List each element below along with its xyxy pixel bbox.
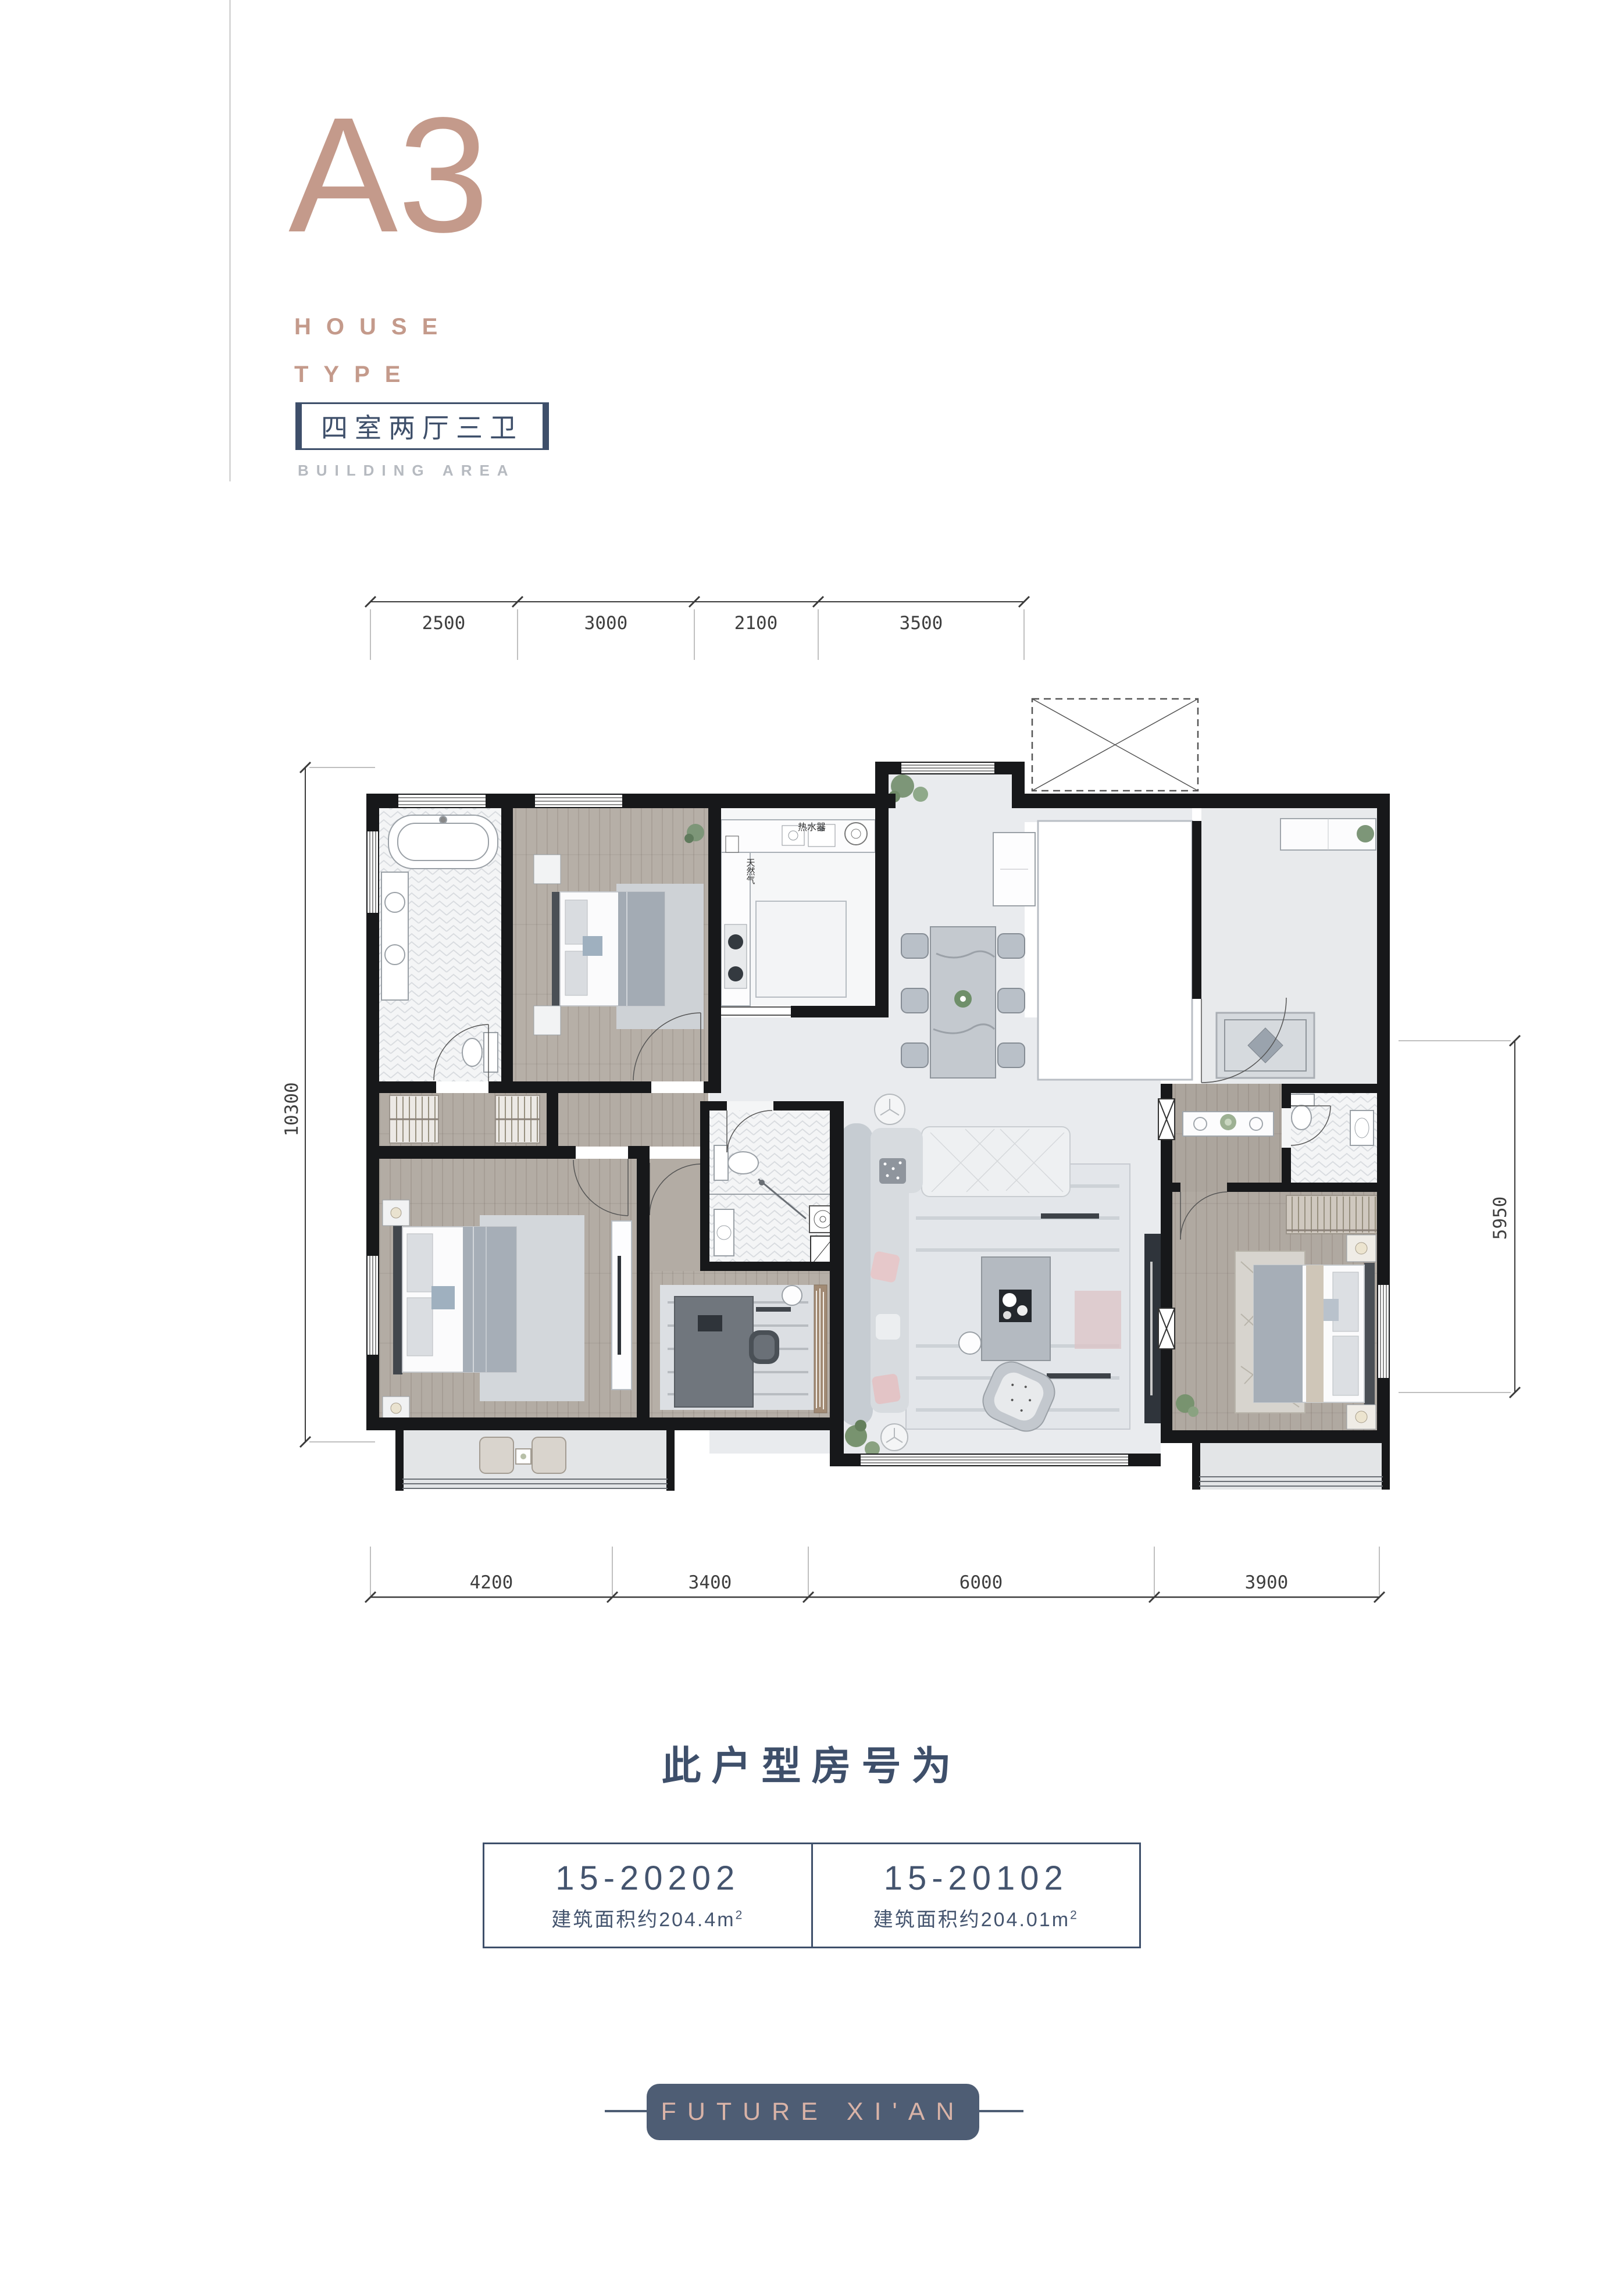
dimension-top: 2500 3000 2100 3500 bbox=[365, 597, 1029, 660]
unit1-room-number: 15-20202 bbox=[555, 1859, 740, 1898]
nightstand bbox=[534, 1006, 561, 1035]
tv-icon bbox=[1150, 1262, 1153, 1395]
kitchen-pass bbox=[721, 1007, 791, 1015]
unit-cell-2: 15-20102 建筑面积约204.01m2 bbox=[811, 1844, 1140, 1947]
water-heater-label: 热水器 bbox=[798, 822, 826, 833]
layout-badge: 四室两厅三卫 bbox=[295, 402, 549, 450]
water-heater bbox=[845, 823, 867, 845]
dimension-bottom: 4200 3400 6000 3900 bbox=[365, 1547, 1385, 1602]
plant-icon bbox=[1357, 825, 1374, 842]
dim-bottom-4: 3900 bbox=[1245, 1572, 1289, 1593]
unit1-area: 建筑面积约204.4m2 bbox=[551, 1904, 744, 1932]
brand-logo: FUTURE XI'AN bbox=[647, 2084, 979, 2140]
unit-cell-1: 15-20202 建筑面积约204.4m2 bbox=[484, 1844, 811, 1947]
unit1-area-sup: 2 bbox=[736, 1909, 744, 1922]
dim-bottom-3: 6000 bbox=[959, 1572, 1003, 1593]
dimension-right: 5950 bbox=[1399, 1035, 1520, 1398]
sink bbox=[1350, 1110, 1374, 1145]
tv-console bbox=[612, 1221, 632, 1390]
unit1-area-text: 建筑面积约204.4m bbox=[551, 1909, 735, 1931]
brochure-page: A3 HOUSE TYPE 四室两厅三卫 BUILDING AREA bbox=[0, 0, 1623, 2296]
unit2-area-text: 建筑面积约204.01m bbox=[873, 1909, 1070, 1931]
type-code-letter: A3 bbox=[288, 83, 489, 266]
dim-left: 10300 bbox=[281, 1082, 302, 1136]
unit2-room-number: 15-20102 bbox=[884, 1859, 1068, 1898]
house-type-code: A3 bbox=[288, 93, 489, 257]
sofa bbox=[840, 1123, 873, 1426]
dim-bottom-1: 4200 bbox=[470, 1572, 513, 1593]
sofa-chaise bbox=[922, 1127, 1070, 1197]
building-area-label: BUILDING AREA bbox=[298, 462, 516, 480]
balcony-bedroom3 bbox=[1192, 1443, 1390, 1490]
brand-logo-text: FUTURE XI'AN bbox=[661, 2098, 965, 2126]
natural-gas-label: 天然气 bbox=[745, 858, 755, 884]
toilet bbox=[1292, 1105, 1311, 1130]
kitchen-island bbox=[756, 901, 846, 997]
dim-top-3: 2100 bbox=[734, 613, 778, 634]
dim-right: 5950 bbox=[1490, 1197, 1511, 1240]
toilet bbox=[484, 1033, 498, 1072]
toilet bbox=[728, 1152, 758, 1174]
elevator-shaft bbox=[1032, 699, 1198, 791]
desk bbox=[675, 1297, 753, 1407]
floor-plan: 2500 3000 2100 3500 4200 3400 6000 bbox=[256, 558, 1553, 1616]
dimension-left: 10300 bbox=[281, 762, 375, 1447]
house-label: HOUSE bbox=[294, 314, 452, 340]
dim-top-2: 3000 bbox=[584, 613, 628, 634]
type-label: TYPE bbox=[294, 362, 415, 388]
left-vertical-rule bbox=[229, 0, 231, 481]
gas-meter bbox=[726, 836, 739, 852]
nightstand bbox=[534, 855, 561, 884]
unit2-area-sup: 2 bbox=[1070, 1909, 1079, 1922]
room-number-title: 此户型房号为 bbox=[0, 1734, 1623, 1791]
exterior-notch bbox=[1038, 821, 1192, 1080]
dim-top-4: 3500 bbox=[900, 613, 943, 634]
pink-pillow bbox=[872, 1373, 901, 1405]
vanity bbox=[381, 872, 408, 1000]
unit-table: 15-20202 建筑面积约204.4m2 15-20102 建筑面积约204.… bbox=[483, 1842, 1141, 1948]
unit2-area: 建筑面积约204.01m2 bbox=[873, 1904, 1079, 1932]
tv-icon bbox=[618, 1256, 621, 1355]
dim-bottom-2: 3400 bbox=[689, 1572, 732, 1593]
dim-top-1: 2500 bbox=[422, 613, 466, 634]
